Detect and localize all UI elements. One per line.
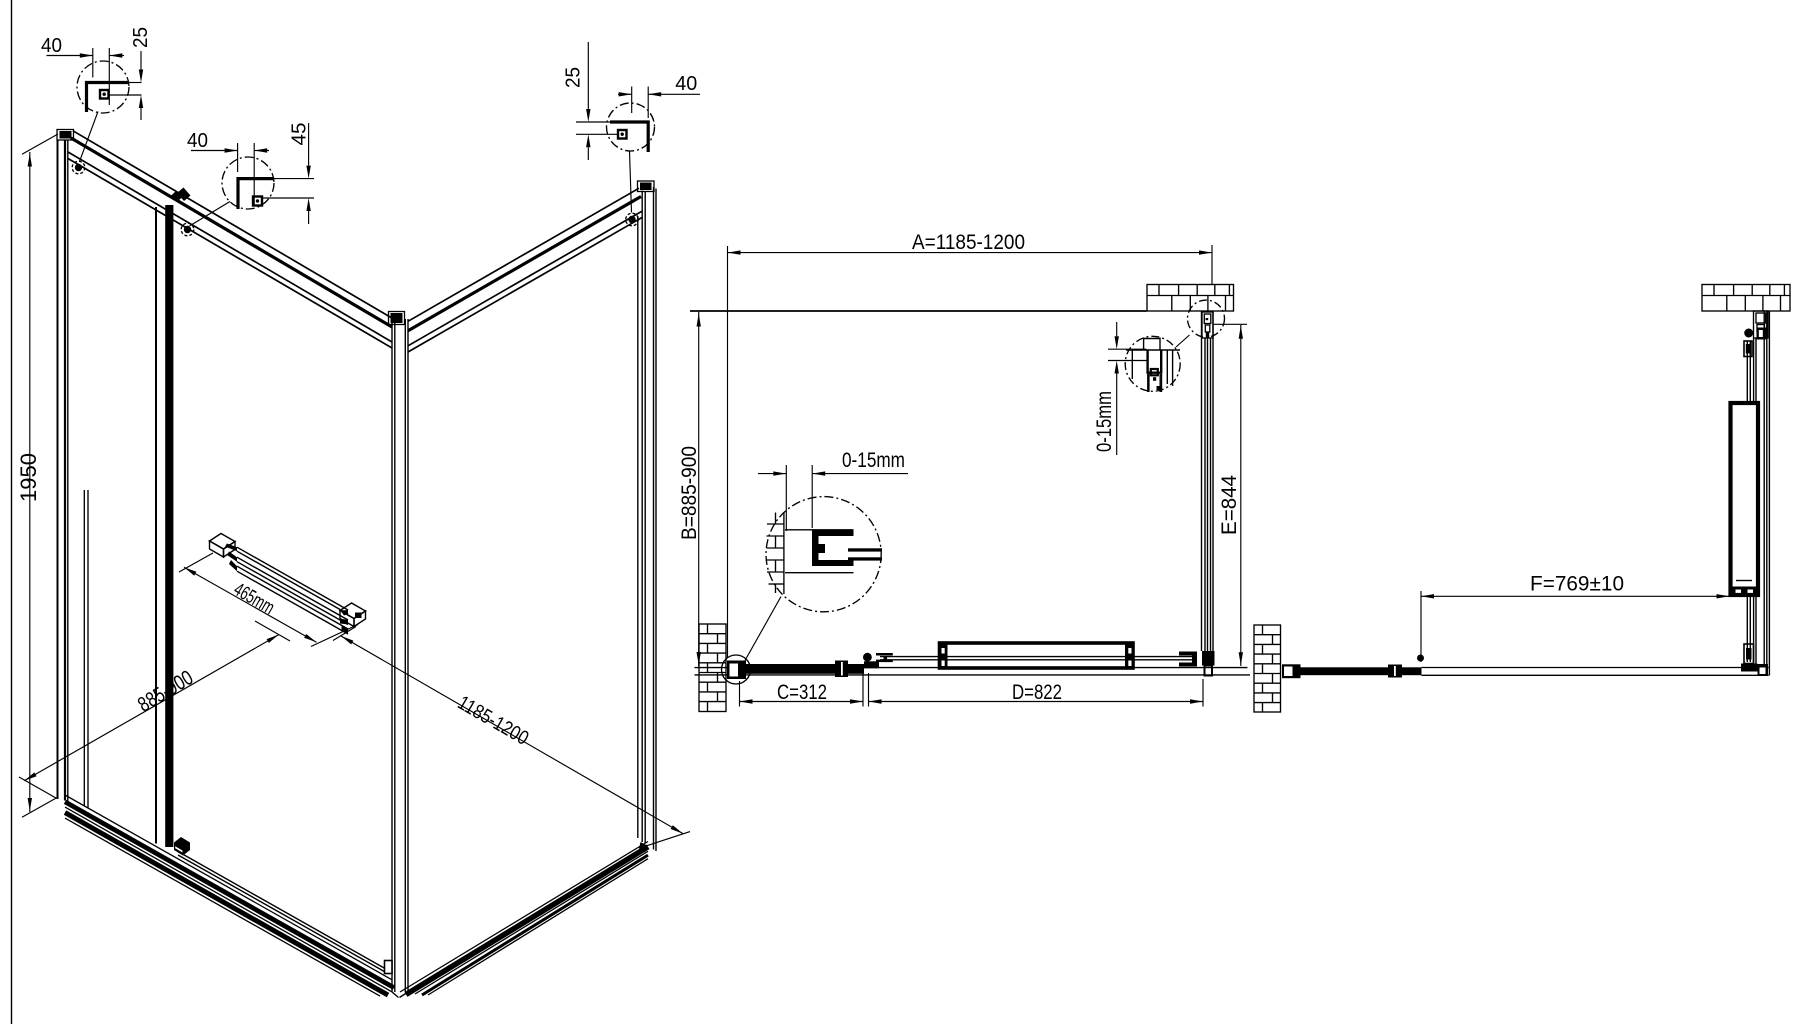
- svg-text:25: 25: [562, 67, 585, 88]
- svg-text:A=1185-1200: A=1185-1200: [912, 230, 1025, 254]
- svg-text:1950: 1950: [16, 453, 41, 502]
- svg-text:40: 40: [41, 34, 62, 57]
- svg-text:C=312: C=312: [777, 681, 827, 704]
- svg-text:25: 25: [129, 27, 152, 48]
- svg-text:0-15mm: 0-15mm: [842, 449, 905, 472]
- svg-text:B=885-900: B=885-900: [677, 446, 701, 540]
- svg-text:0-15mm: 0-15mm: [1093, 391, 1116, 452]
- svg-text:E=844: E=844: [1217, 475, 1241, 535]
- svg-text:40: 40: [675, 72, 697, 95]
- svg-text:40: 40: [187, 129, 208, 152]
- svg-text:45: 45: [288, 123, 311, 146]
- svg-text:F=769±10: F=769±10: [1530, 573, 1624, 596]
- svg-text:D=822: D=822: [1012, 681, 1062, 704]
